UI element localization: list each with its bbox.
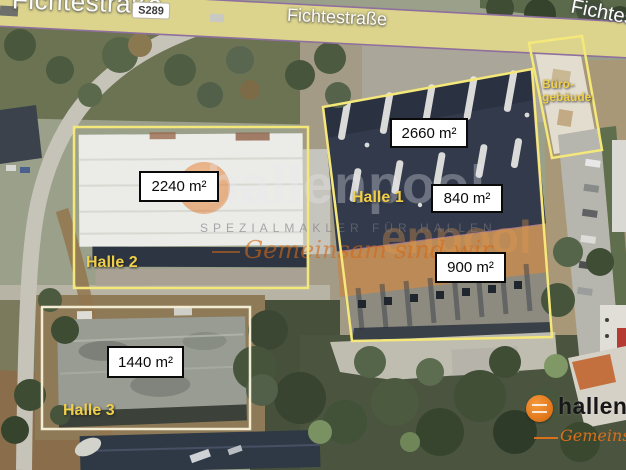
halle-1-label: Halle 1 [352,190,404,207]
street-name-center: Fichtestraße [287,5,388,31]
buero-label-line2: gebäude [542,90,591,104]
route-badge-s289: S289 [132,1,171,19]
halle-3-label: Halle 3 [63,403,115,420]
halle-2-label: Halle 2 [86,255,138,272]
halle-1-area-bottom-box: 900 m² [435,252,506,283]
buero-label: Büro- gebäude [542,78,604,103]
company-logo-slogan-dash [534,437,558,439]
halle-3-area-box: 1440 m² [107,346,184,378]
company-logo-brand: hallenpool [558,393,626,420]
company-logo-slogan: Gemeinsam sind wir [560,426,626,445]
halle-1-area-top-box: 2660 m² [390,118,468,148]
halle-2-area-box: 2240 m² [139,171,219,202]
aerial-map: hallenpool enpool SPEZIALMAKLER FÜR HALL… [0,0,626,470]
bottom-building [80,430,321,470]
halle-1-area-middle-box: 840 m² [431,184,503,213]
company-logo-icon [526,395,553,422]
